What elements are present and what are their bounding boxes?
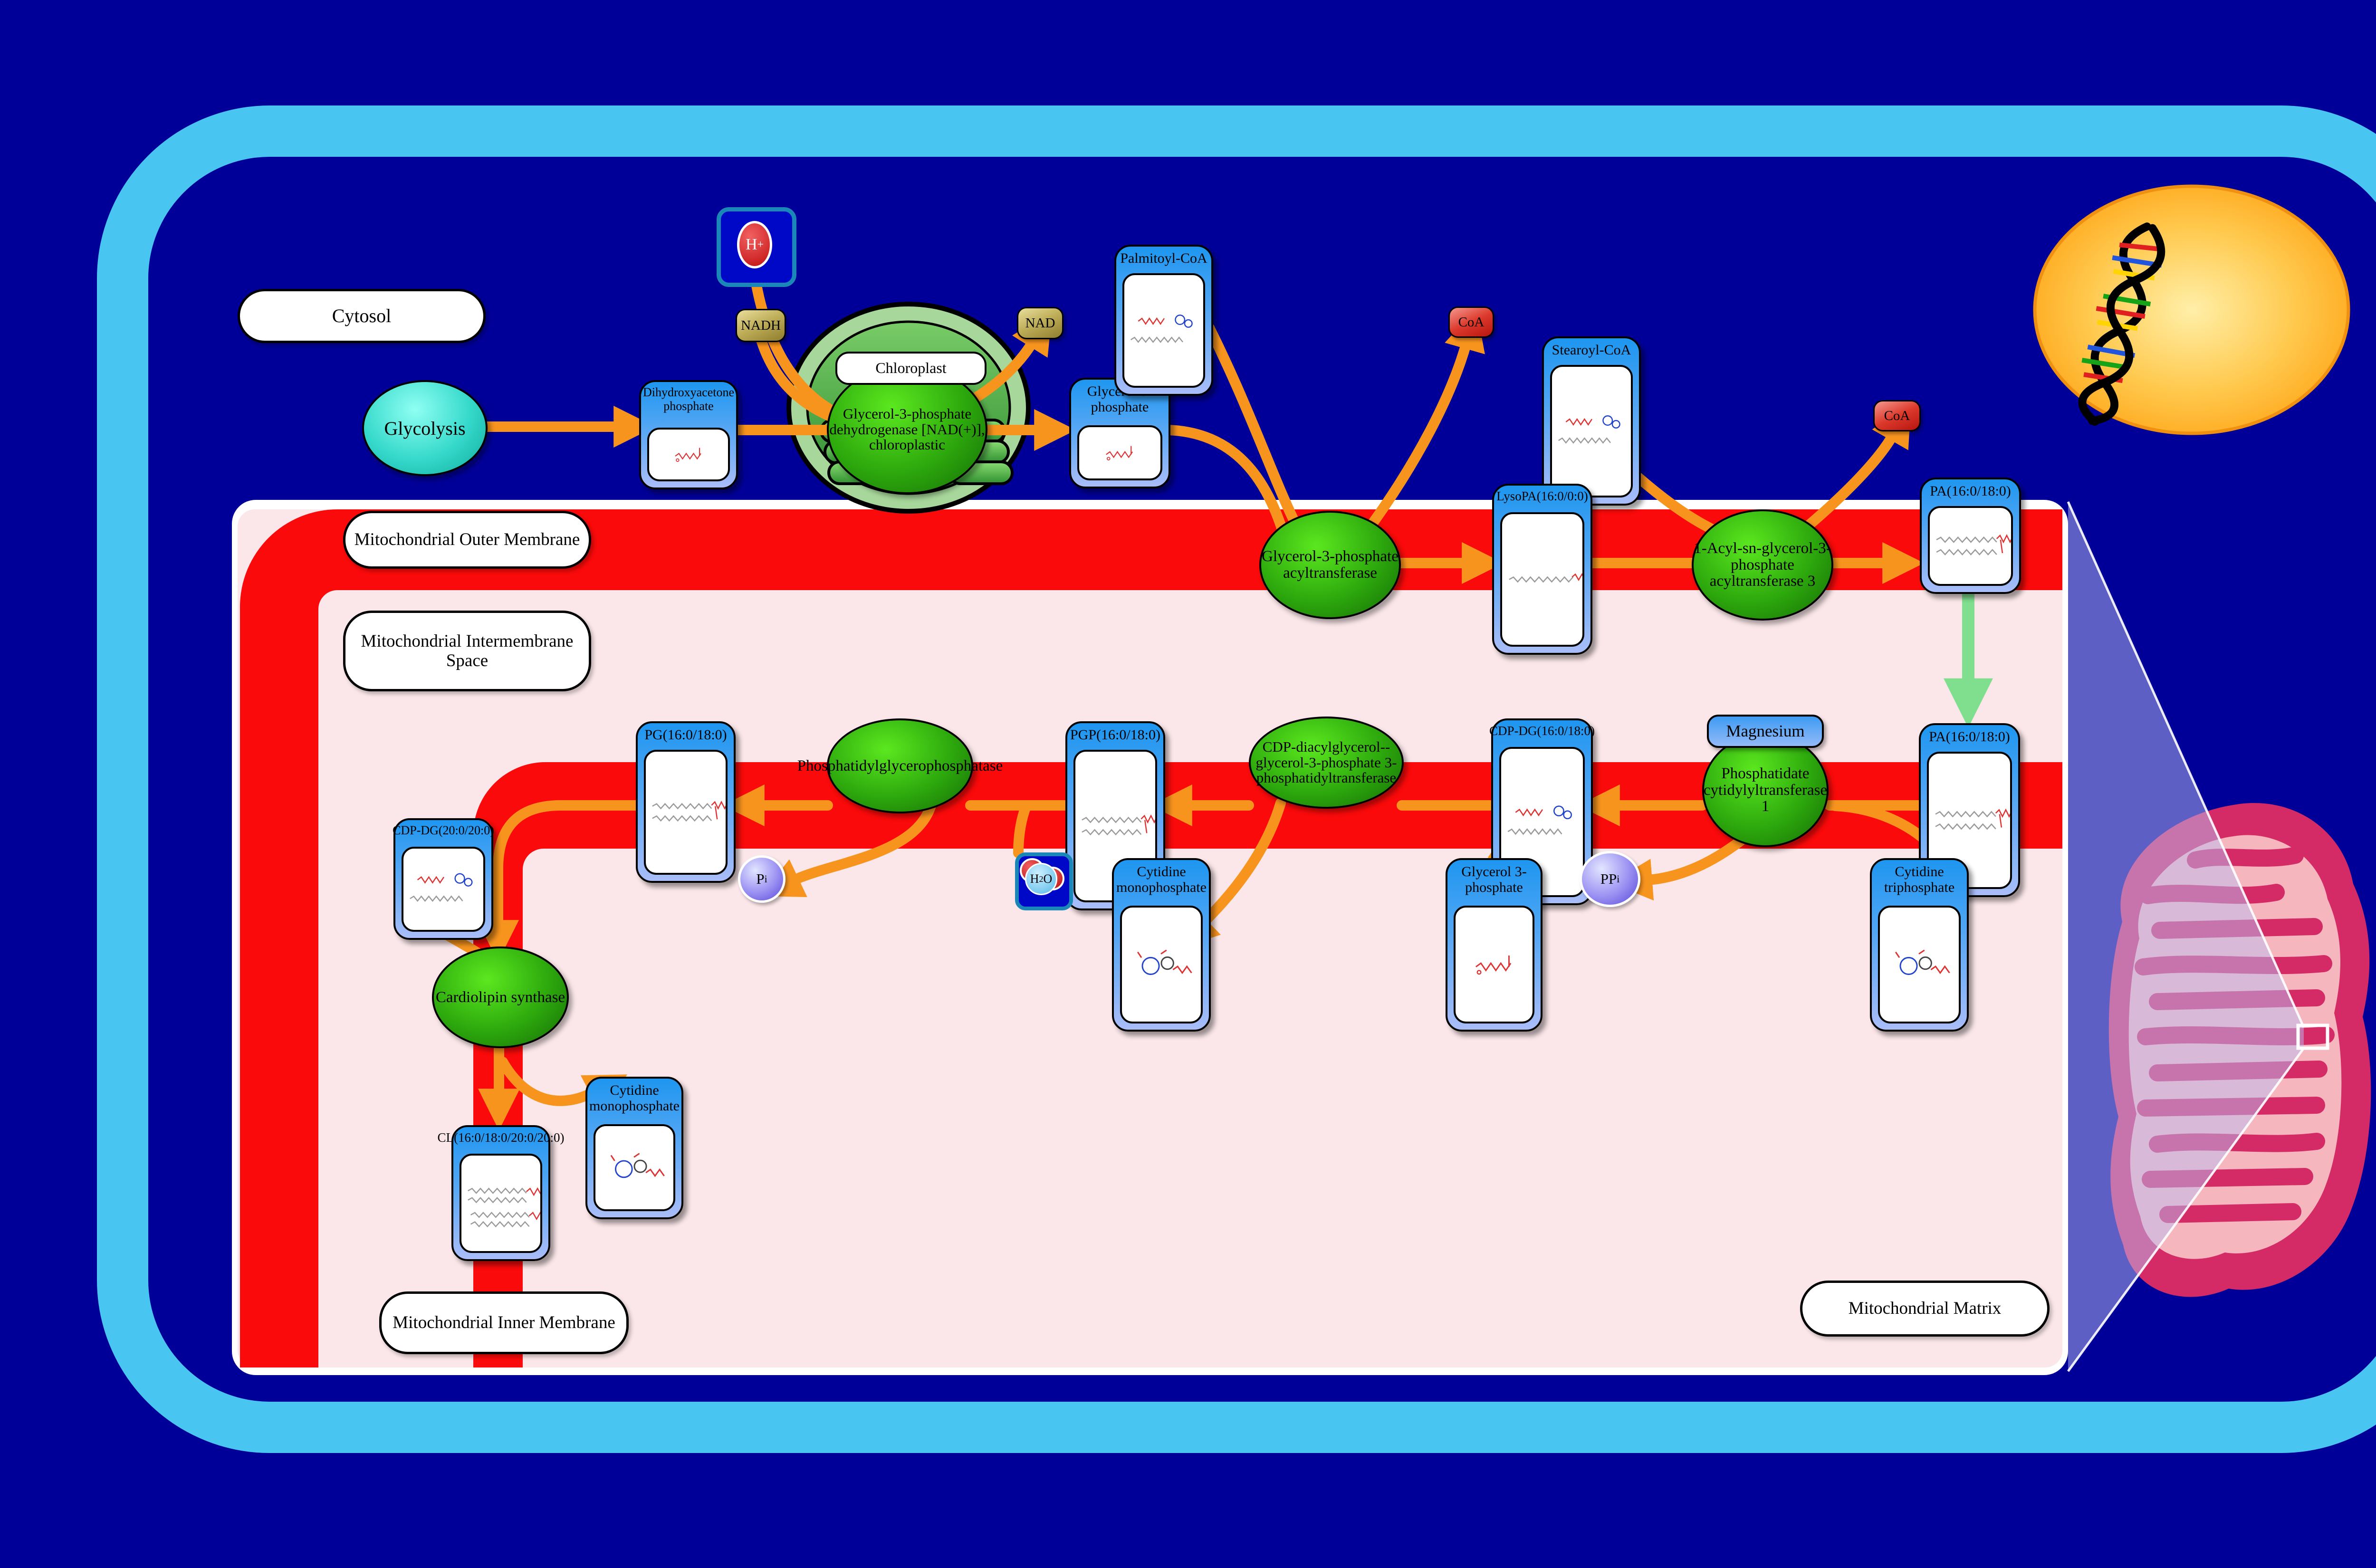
enzyme-cds1[interactable]: Phosphatidate cytidylyltransferase 1 bbox=[1702, 733, 1829, 847]
compound-pa-outer[interactable]: PA(16:0/18:0) bbox=[1920, 478, 2021, 594]
label-intermembrane-space: Mitochondrial Intermembrane Space bbox=[343, 611, 591, 691]
enzyme-pgp-phosphatase[interactable]: Phosphatidylglycerophosphatase bbox=[827, 718, 973, 813]
molecule-structure bbox=[460, 1154, 542, 1253]
h-plus-icon[interactable]: H+ bbox=[717, 207, 796, 287]
compound-cl[interactable]: CL(16:0/18:0/20:0/20:0) bbox=[451, 1125, 550, 1261]
molecule-structure bbox=[1928, 506, 2013, 586]
compound-pg[interactable]: PG(16:0/18:0) bbox=[636, 721, 736, 883]
pathway-canvas: Cytosol Chloroplast Mitochondrial Outer … bbox=[0, 0, 2376, 1568]
compound-stearoyl-coa[interactable]: Stearoyl-CoA bbox=[1542, 336, 1641, 506]
molecule-structure bbox=[1077, 425, 1162, 480]
cofactor-coa-1[interactable]: CoA bbox=[1448, 306, 1494, 338]
enzyme-pgs1[interactable]: CDP-diacylglycerol--glycerol-3-phosphate… bbox=[1249, 717, 1404, 809]
molecule-structure bbox=[1120, 906, 1203, 1023]
compound-cdp-dg-2[interactable]: CDP-DG(20:0/20:0) bbox=[393, 818, 493, 940]
compound-cmp-left[interactable]: Cytidine monophosphate bbox=[585, 1077, 683, 1219]
molecule-structure bbox=[1122, 273, 1205, 388]
compound-palmitoyl-coa[interactable]: Palmitoyl-CoA bbox=[1114, 245, 1213, 396]
enzyme-agpat3[interactable]: 1-Acyl-sn-glycerol-3-phosphate acyltrans… bbox=[1692, 509, 1833, 621]
molecule-structure bbox=[647, 428, 730, 481]
molecule-structure bbox=[402, 847, 485, 932]
h2o-icon[interactable]: H2O bbox=[1015, 852, 1073, 910]
enzyme-cardiolipin-synthase[interactable]: Cardiolipin synthase bbox=[432, 947, 569, 1048]
cofactor-ppi[interactable]: PPi bbox=[1580, 851, 1640, 907]
molecule-structure bbox=[1454, 906, 1534, 1023]
cofactor-nadh[interactable]: NADH bbox=[736, 309, 786, 342]
compound-lysopa[interactable]: LysoPA(16:0/0:0) bbox=[1492, 484, 1592, 655]
cofactor-magnesium[interactable]: Magnesium bbox=[1707, 715, 1824, 748]
node-glycolysis[interactable]: Glycolysis bbox=[362, 380, 488, 476]
label-cytosol: Cytosol bbox=[238, 289, 486, 343]
enzyme-gpat[interactable]: Glycerol-3-phosphate acyltransferase bbox=[1259, 511, 1401, 619]
compound-ctp[interactable]: Cytidine triphosphate bbox=[1870, 858, 1969, 1032]
label-outer-membrane: Mitochondrial Outer Membrane bbox=[343, 511, 591, 569]
cofactor-coa-2[interactable]: CoA bbox=[1873, 400, 1921, 431]
molecule-structure bbox=[594, 1124, 675, 1211]
molecule-structure bbox=[644, 750, 728, 875]
label-matrix: Mitochondrial Matrix bbox=[1800, 1281, 2050, 1337]
molecule-structure bbox=[1878, 906, 1961, 1023]
molecule-structure bbox=[1500, 512, 1584, 647]
label-chloroplast: Chloroplast bbox=[835, 352, 987, 385]
compound-dhap[interactable]: Dihydroxyacetone phosphate bbox=[639, 380, 738, 489]
compound-g3p-bottom[interactable]: Glycerol 3-phosphate bbox=[1446, 858, 1542, 1032]
compound-cmp-mid[interactable]: Cytidine monophosphate bbox=[1112, 858, 1211, 1032]
label-inner-membrane: Mitochondrial Inner Membrane bbox=[379, 1291, 629, 1354]
cofactor-nad[interactable]: NAD bbox=[1017, 307, 1063, 339]
molecule-structure bbox=[1550, 365, 1633, 497]
cofactor-pi[interactable]: Pi bbox=[738, 855, 786, 903]
nucleus-icon bbox=[2035, 186, 2348, 433]
